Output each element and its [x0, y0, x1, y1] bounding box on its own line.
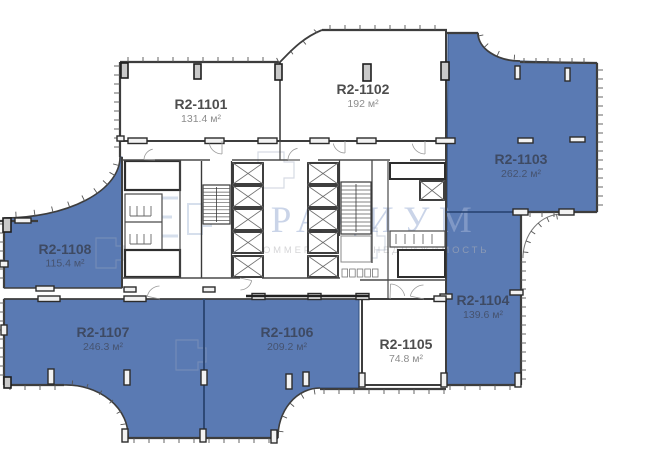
svg-text:R2-1105: R2-1105 — [380, 336, 433, 352]
svg-text:R2-1107: R2-1107 — [77, 324, 130, 340]
svg-text:115.4 м²: 115.4 м² — [45, 258, 85, 270]
svg-text:R2-1106: R2-1106 — [261, 324, 314, 340]
svg-text:74.8 м²: 74.8 м² — [389, 353, 424, 365]
svg-text:R2-1102: R2-1102 — [337, 81, 390, 97]
svg-text:R2-1104: R2-1104 — [457, 292, 510, 308]
svg-text:R2-1101: R2-1101 — [175, 96, 228, 112]
svg-text:R2-1108: R2-1108 — [39, 241, 92, 257]
svg-text:246.3 м²: 246.3 м² — [83, 341, 123, 353]
svg-text:139.6 м²: 139.6 м² — [463, 309, 503, 321]
svg-text:262.2 м²: 262.2 м² — [501, 168, 541, 180]
svg-text:131.4 м²: 131.4 м² — [181, 113, 221, 125]
svg-text:192 м²: 192 м² — [347, 98, 379, 110]
svg-text:РАДИУМ: РАДИУМ — [271, 200, 482, 241]
svg-text:209.2 м²: 209.2 м² — [267, 341, 307, 353]
svg-text:R2-1103: R2-1103 — [495, 151, 548, 167]
